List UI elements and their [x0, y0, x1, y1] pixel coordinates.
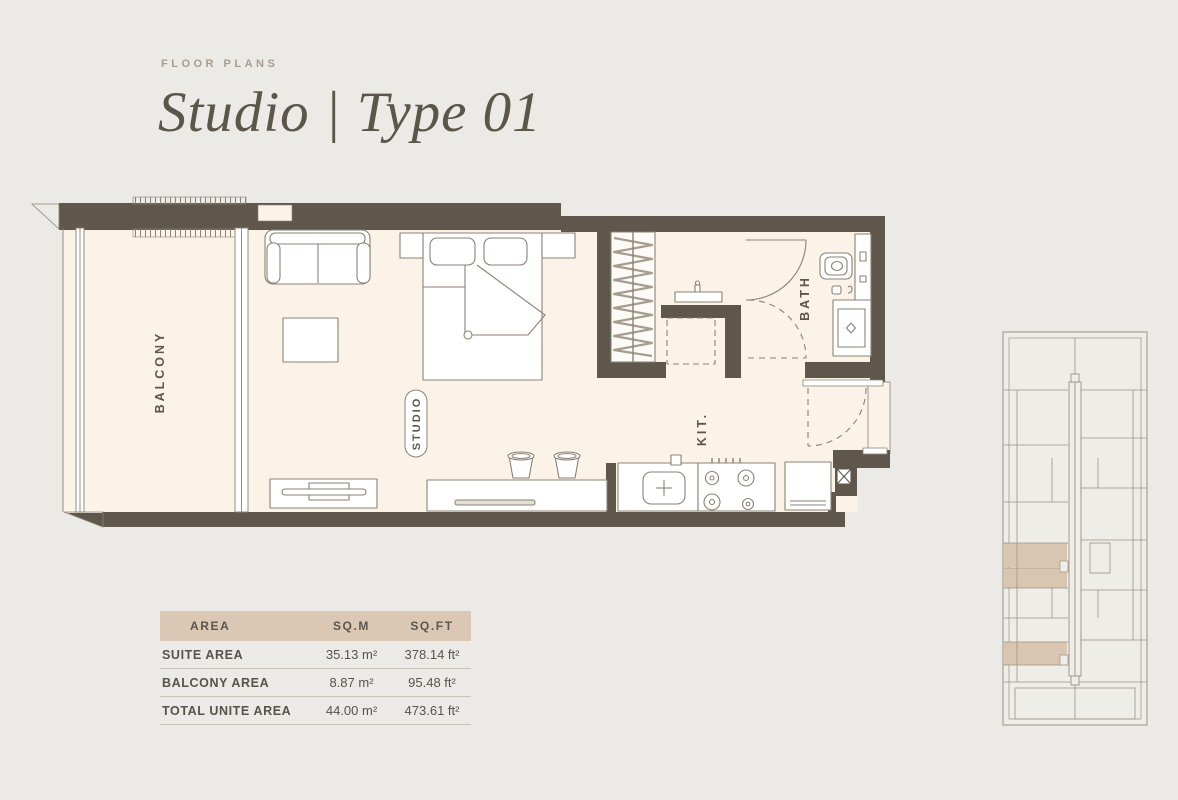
col-header-sqm: SQ.M [310, 619, 393, 633]
bar-stool [554, 452, 580, 478]
sofa [265, 230, 370, 284]
bath-label: BATH [798, 275, 812, 321]
floor-plan: BALCONY STUDIO BATH KIT. [28, 192, 923, 542]
key-plan [995, 328, 1165, 740]
studio-label-pill: STUDIO [405, 390, 427, 457]
col-header-sqft: SQ.FT [393, 619, 471, 633]
row-sqm: 35.13 m² [310, 647, 393, 662]
socket [671, 455, 681, 465]
row-label: TOTAL UNITE AREA [160, 704, 310, 718]
entry-header [803, 380, 883, 386]
shaft-box [837, 469, 851, 484]
entry-sill [863, 448, 887, 454]
table-row: TOTAL UNITE AREA 44.00 m² 473.61 ft² [160, 697, 471, 725]
bar-stool [508, 452, 534, 478]
table-header: AREA SQ.M SQ.FT [160, 611, 471, 641]
kitchen-island [427, 480, 607, 511]
table-row: BALCONY AREA 8.87 m² 95.48 ft² [160, 669, 471, 697]
balcony-label: BALCONY [153, 331, 167, 414]
bath-counter [855, 234, 871, 310]
row-sqm: 44.00 m² [310, 703, 393, 718]
row-label: BALCONY AREA [160, 676, 310, 690]
row-sqm: 8.87 m² [310, 675, 393, 690]
kitchen-label: KIT. [695, 412, 709, 446]
row-sqft: 473.61 ft² [393, 703, 471, 718]
tv-console [270, 479, 377, 508]
vanity-sink [833, 300, 871, 356]
page-title: Studio | Type 01 [158, 84, 542, 141]
studio-label: STUDIO [411, 397, 423, 451]
stove [698, 458, 775, 511]
coffee-table [283, 318, 338, 362]
row-sqft: 95.48 ft² [393, 675, 471, 690]
row-sqft: 378.14 ft² [393, 647, 471, 662]
table-row: SUITE AREA 35.13 m² 378.14 ft² [160, 641, 471, 669]
wardrobe [611, 232, 655, 362]
entry-recess [868, 382, 890, 454]
area-table: AREA SQ.M SQ.FT SUITE AREA 35.13 m² 378.… [160, 611, 471, 725]
nightstand-left [400, 233, 423, 258]
header: FLOOR PLANS Studio | Type 01 [161, 58, 542, 141]
nightstand-right [542, 233, 575, 258]
kitchen-sink [618, 463, 698, 511]
balcony-window-wall [235, 228, 248, 512]
wall-niche [258, 205, 292, 221]
fridge [785, 462, 831, 510]
elevator-core [1069, 374, 1081, 685]
row-label: SUITE AREA [160, 648, 310, 662]
bed [423, 233, 545, 380]
section-eyebrow: FLOOR PLANS [161, 58, 542, 70]
exterior-mask [857, 468, 923, 527]
col-header-area: AREA [160, 619, 310, 633]
page: FLOOR PLANS Studio | Type 01 [0, 0, 1178, 800]
